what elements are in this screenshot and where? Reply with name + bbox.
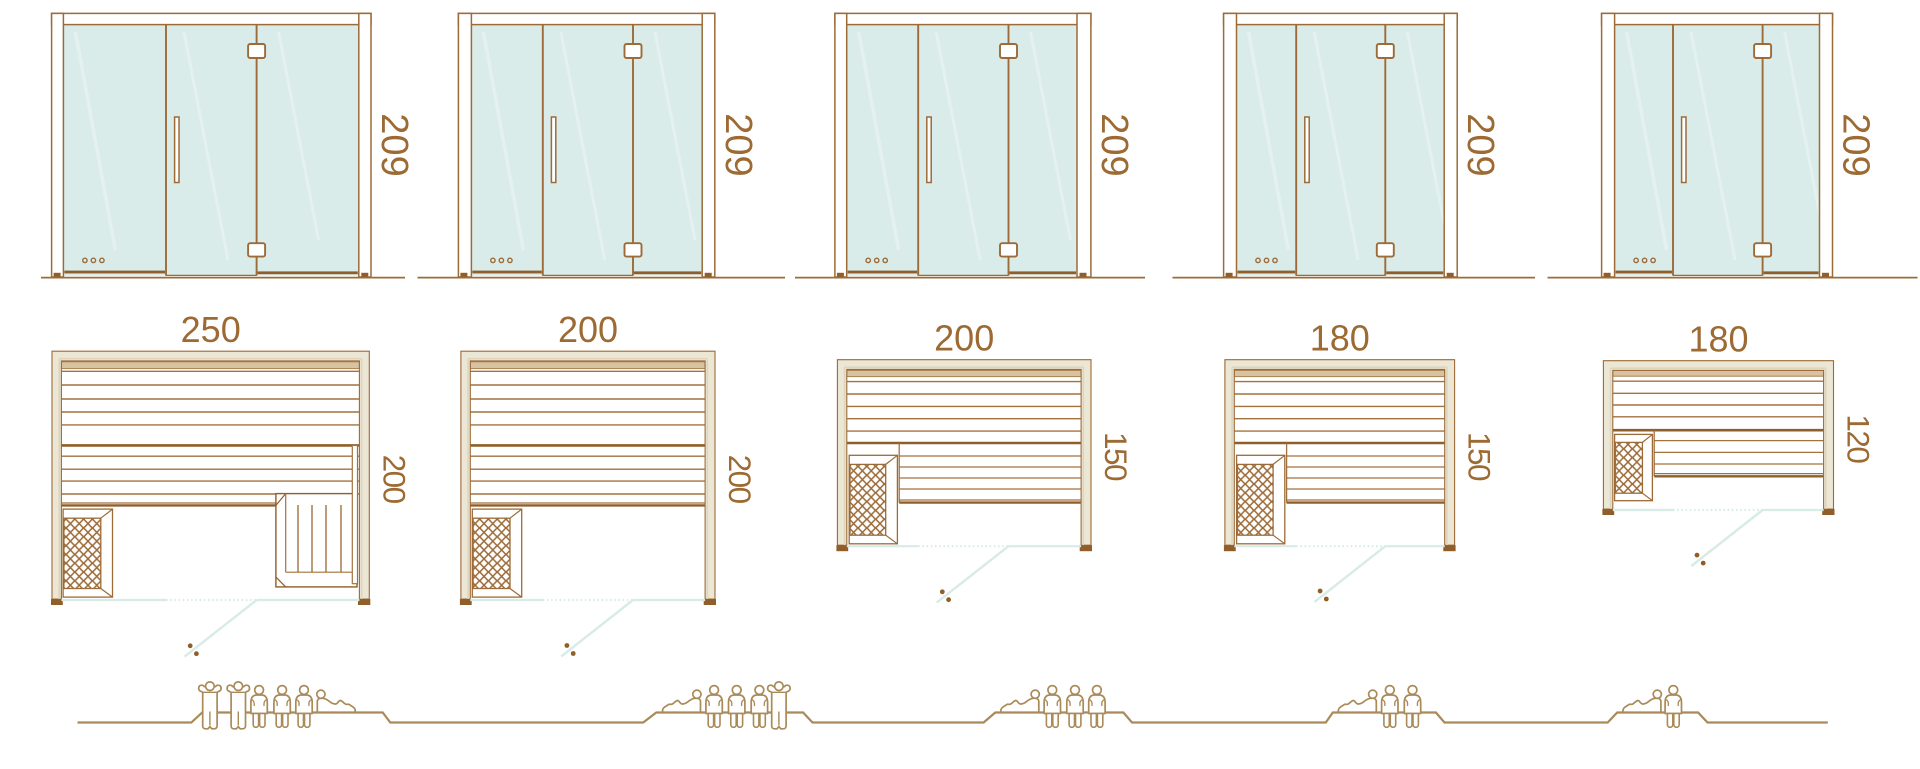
- svg-text:200: 200: [376, 455, 412, 504]
- svg-text:209: 209: [717, 113, 759, 176]
- svg-text:209: 209: [1093, 113, 1135, 176]
- svg-text:180: 180: [1310, 318, 1370, 359]
- svg-text:150: 150: [1462, 432, 1498, 481]
- svg-text:200: 200: [558, 309, 618, 350]
- svg-text:209: 209: [1835, 113, 1877, 176]
- svg-text:209: 209: [373, 113, 415, 176]
- svg-text:250: 250: [181, 309, 241, 350]
- svg-text:209: 209: [1459, 113, 1501, 176]
- svg-text:150: 150: [1098, 432, 1134, 481]
- svg-text:200: 200: [934, 318, 994, 359]
- svg-text:200: 200: [722, 455, 758, 504]
- svg-text:180: 180: [1688, 319, 1748, 360]
- svg-text:120: 120: [1841, 414, 1877, 463]
